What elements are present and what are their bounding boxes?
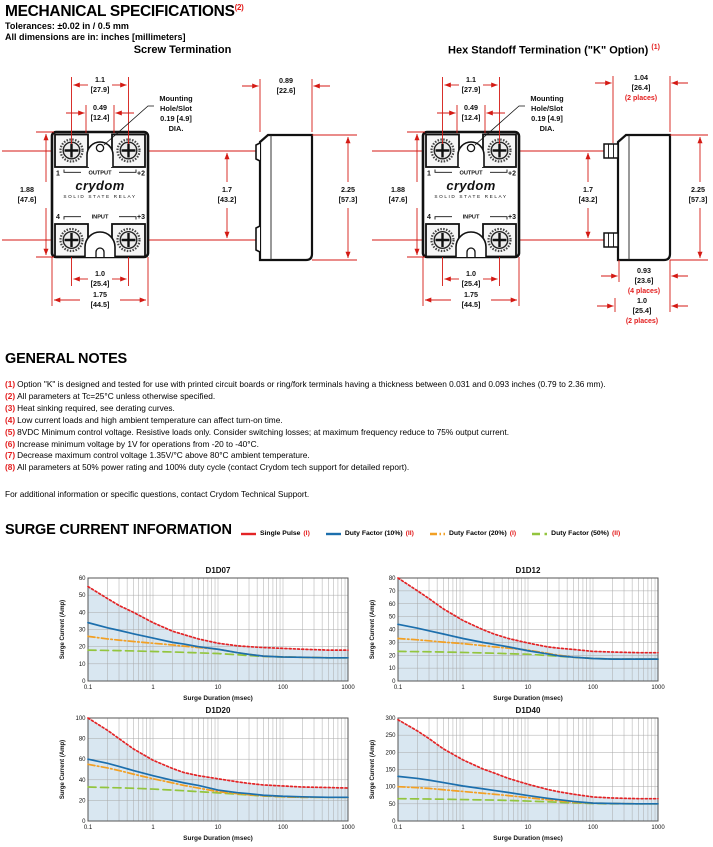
dim-mm-label: [25.4] — [91, 279, 110, 288]
svg-text:1000: 1000 — [651, 685, 665, 691]
svg-text:50: 50 — [389, 615, 396, 621]
mounting-note: 0.19 [4.9] — [160, 114, 192, 123]
svg-text:D1D40: D1D40 — [516, 706, 541, 715]
note-text: Decrease maximum control voltage 1.35V/°… — [17, 450, 310, 460]
dim-label: 1.1 — [95, 75, 105, 84]
svg-text:1000: 1000 — [341, 685, 355, 691]
relay-front-view — [423, 132, 519, 257]
legend-label: Duty Factor (50%) — [551, 530, 609, 537]
svg-text:60: 60 — [79, 576, 86, 582]
svg-text:10: 10 — [79, 662, 86, 668]
dim-mm-label: [47.6] — [389, 195, 408, 204]
note-item: (2)All parameters at Tc=25°C unless othe… — [5, 391, 606, 403]
svg-text:100: 100 — [278, 825, 289, 831]
dim-label: 2.25 — [691, 185, 705, 194]
note-number: (6) — [5, 439, 15, 449]
screw-side-view — [256, 135, 312, 260]
svg-text:0.1: 0.1 — [84, 685, 93, 691]
dim-label: 0.49 — [464, 103, 478, 112]
svg-text:0.1: 0.1 — [394, 825, 403, 831]
dim-mm-label: [44.5] — [91, 300, 110, 309]
surge-section-title: SURGE CURRENT INFORMATION — [5, 522, 232, 538]
svg-text:1: 1 — [151, 825, 155, 831]
svg-text:20: 20 — [389, 653, 396, 659]
note-number: (1) — [5, 379, 15, 389]
svg-text:80: 80 — [79, 737, 86, 743]
legend-line-swatch — [531, 531, 548, 537]
svg-text:1000: 1000 — [651, 825, 665, 831]
note-number: (5) — [5, 427, 15, 437]
svg-text:100: 100 — [75, 716, 86, 722]
dim-note-label: (4 places) — [628, 288, 660, 295]
svg-text:40: 40 — [389, 628, 396, 634]
dim-label: 1.0 — [95, 269, 105, 278]
svg-text:70: 70 — [389, 589, 396, 595]
svg-text:10: 10 — [215, 685, 222, 691]
dim-mm-label: [25.4] — [633, 306, 652, 315]
dim-note-label: (2 places) — [626, 318, 658, 325]
mounting-note: Mounting — [159, 94, 193, 103]
dim-mm-label: [27.9] — [91, 85, 110, 94]
svg-text:D1D12: D1D12 — [516, 566, 541, 575]
dim-label: 1.04 — [634, 73, 648, 82]
dim-mm-label: [27.9] — [462, 85, 481, 94]
surge-chart-d1d20: D1D20Surge Current (Amp)Surge Duration (… — [57, 703, 359, 847]
legend-label: Single Pulse — [260, 530, 300, 537]
note-text: All parameters at 50% power rating and 1… — [17, 462, 409, 472]
screw-termination-title: Screw Termination — [0, 44, 365, 56]
legend-item-duty-factor-50: Duty Factor (50%) (II) — [531, 530, 620, 537]
svg-text:20: 20 — [79, 645, 86, 651]
surge-chart-d1d12: D1D12Surge Current (Amp)Surge Duration (… — [367, 563, 669, 708]
dim-label: 1.0 — [637, 296, 647, 305]
dim-label: 1.1 — [466, 75, 476, 84]
svg-text:10: 10 — [389, 666, 396, 672]
dim-label: 0.89 — [279, 76, 293, 85]
hex-termination-drawing: 1.1 [27.9] 0.49 [12.4] Mounting Hole/Slo… — [370, 58, 713, 350]
note-number: (7) — [5, 450, 15, 460]
dim-mm-label: [26.4] — [632, 83, 651, 92]
svg-text:150: 150 — [385, 768, 396, 774]
legend-item-duty-factor-20: Duty Factor (20%) (I) — [429, 530, 516, 537]
svg-text:80: 80 — [389, 576, 396, 582]
dim-label: 2.25 — [341, 185, 355, 194]
svg-text:100: 100 — [588, 685, 599, 691]
mounting-note: DIA. — [540, 124, 555, 133]
svg-text:300: 300 — [385, 716, 396, 722]
mounting-note: 0.19 [4.9] — [531, 114, 563, 123]
dim-mm-label: [25.4] — [462, 279, 481, 288]
svg-text:Surge Current (Amp): Surge Current (Amp) — [370, 740, 376, 799]
dim-mm-label: [22.6] — [277, 86, 296, 95]
datasheet-page: MECHANICAL SPECIFICATIONS(2) Tolerances:… — [0, 0, 713, 847]
surge-legend: Single Pulse (I) Duty Factor (10%) (II) … — [240, 530, 620, 537]
svg-text:60: 60 — [389, 602, 396, 608]
dim-mm-label: [43.2] — [218, 195, 237, 204]
svg-text:Surge Duration (msec): Surge Duration (msec) — [183, 695, 253, 702]
dim-mm-label: [23.6] — [635, 276, 654, 285]
svg-text:20: 20 — [79, 798, 86, 804]
note-item: (6)Increase minimum voltage by 1V for op… — [5, 439, 606, 451]
mounting-note: Hole/Slot — [160, 104, 193, 113]
svg-text:40: 40 — [79, 778, 86, 784]
note-text: Increase minimum voltage by 1V for opera… — [17, 439, 259, 449]
svg-text:100: 100 — [278, 685, 289, 691]
note-item: (4)Low current loads and high ambient te… — [5, 415, 606, 427]
svg-text:Surge Duration (msec): Surge Duration (msec) — [493, 695, 563, 702]
dim-note-label: (2 places) — [625, 95, 657, 102]
legend-footnote-marker: (I) — [303, 530, 309, 537]
legend-footnote-marker: (II) — [406, 530, 414, 537]
svg-text:Surge Duration (msec): Surge Duration (msec) — [183, 835, 253, 842]
svg-text:50: 50 — [389, 802, 396, 808]
surge-chart-d1d07: D1D07Surge Current (Amp)Surge Duration (… — [57, 563, 359, 708]
svg-text:60: 60 — [79, 757, 86, 763]
legend-item-duty-factor-10: Duty Factor (10%) (II) — [325, 530, 414, 537]
svg-text:D1D20: D1D20 — [206, 706, 231, 715]
svg-text:250: 250 — [385, 733, 396, 739]
hex-side-view — [604, 135, 670, 260]
surge-chart-d1d40: D1D40Surge Current (Amp)Surge Duration (… — [367, 703, 669, 847]
legend-line-swatch — [325, 531, 342, 537]
dim-mm-label: [43.2] — [579, 195, 598, 204]
note-text: Heat sinking required, see derating curv… — [17, 403, 175, 413]
svg-text:1: 1 — [151, 685, 155, 691]
note-text: 8VDC Minimum control voltage. Resistive … — [17, 427, 509, 437]
dim-label: 1.88 — [20, 185, 34, 194]
dim-label: 1.0 — [466, 269, 476, 278]
dim-mm-label: [12.4] — [91, 113, 110, 122]
mounting-note: Hole/Slot — [531, 104, 564, 113]
hex-termination-title: Hex Standoff Termination ("K" Option) (1… — [395, 44, 713, 57]
svg-text:Surge Current (Amp): Surge Current (Amp) — [60, 740, 66, 799]
legend-footnote-marker: (II) — [612, 530, 620, 537]
svg-text:30: 30 — [79, 628, 86, 634]
legend-line-swatch — [429, 531, 446, 537]
svg-text:10: 10 — [525, 825, 532, 831]
tolerances-note: Tolerances: ±0.02 in / 0.5 mm — [5, 21, 129, 31]
svg-text:200: 200 — [385, 750, 396, 756]
hex-termination-title-text: Hex Standoff Termination ("K" Option) — [448, 45, 648, 57]
dim-label: 1.75 — [464, 290, 478, 299]
svg-text:1: 1 — [461, 825, 465, 831]
mounting-note: DIA. — [169, 124, 184, 133]
note-text: Option "K" is designed and tested for us… — [17, 379, 605, 389]
general-notes-list: (1)Option "K" is designed and tested for… — [5, 379, 606, 474]
note-item: (7)Decrease maximum control voltage 1.35… — [5, 450, 606, 462]
note-item: (8)All parameters at 50% power rating an… — [5, 462, 606, 474]
dim-label: 1.75 — [93, 290, 107, 299]
note-text: All parameters at Tc=25°C unless otherwi… — [17, 391, 215, 401]
relay-front-view — [52, 132, 148, 257]
page-title-footnote: (2) — [235, 3, 244, 12]
dim-mm-label: [44.5] — [462, 300, 481, 309]
legend-footnote-marker: (I) — [510, 530, 516, 537]
legend-label: Duty Factor (20%) — [449, 530, 507, 537]
svg-text:Surge Duration (msec): Surge Duration (msec) — [493, 835, 563, 842]
dimensions-note: All dimensions are in: inches [millimete… — [5, 32, 186, 42]
svg-text:100: 100 — [385, 785, 396, 791]
page-title: MECHANICAL SPECIFICATIONS(2) — [5, 3, 244, 21]
svg-text:40: 40 — [79, 610, 86, 616]
svg-text:10: 10 — [525, 685, 532, 691]
dim-label: 0.49 — [93, 103, 107, 112]
note-number: (3) — [5, 403, 15, 413]
contact-note: For additional information or specific q… — [5, 489, 309, 499]
svg-text:0.1: 0.1 — [394, 685, 403, 691]
svg-text:1000: 1000 — [341, 825, 355, 831]
svg-text:1: 1 — [461, 685, 465, 691]
note-item: (3)Heat sinking required, see derating c… — [5, 403, 606, 415]
dim-mm-label: [57.3] — [689, 195, 708, 204]
legend-line-swatch — [240, 531, 257, 537]
svg-text:10: 10 — [215, 825, 222, 831]
page-title-text: MECHANICAL SPECIFICATIONS — [5, 3, 235, 20]
dim-mm-label: [12.4] — [462, 113, 481, 122]
mounting-note: Mounting — [530, 94, 564, 103]
note-item: (5)8VDC Minimum control voltage. Resisti… — [5, 427, 606, 439]
legend-label: Duty Factor (10%) — [345, 530, 403, 537]
svg-text:0.1: 0.1 — [84, 825, 93, 831]
svg-text:50: 50 — [79, 593, 86, 599]
dim-label: 1.7 — [583, 185, 593, 194]
svg-text:Surge Current (Amp): Surge Current (Amp) — [60, 600, 66, 659]
svg-text:100: 100 — [588, 825, 599, 831]
note-text: Low current loads and high ambient tempe… — [17, 415, 283, 425]
note-number: (2) — [5, 391, 15, 401]
svg-text:30: 30 — [389, 640, 396, 646]
note-number: (8) — [5, 462, 15, 472]
note-item: (1)Option "K" is designed and tested for… — [5, 379, 606, 391]
general-notes-title: GENERAL NOTES — [5, 351, 127, 367]
dim-mm-label: [47.6] — [18, 195, 37, 204]
legend-item-single-pulse: Single Pulse (I) — [240, 530, 310, 537]
hex-termination-footnote: (1) — [651, 44, 660, 51]
screw-termination-drawing: 1 OUTPUT +2 crydom SOLID STATE RELAY 4 I… — [0, 58, 365, 350]
svg-text:D1D07: D1D07 — [206, 566, 231, 575]
hex-standoff — [604, 144, 618, 158]
note-number: (4) — [5, 415, 15, 425]
svg-text:Surge Current (Amp): Surge Current (Amp) — [370, 600, 376, 659]
dim-mm-label: [57.3] — [339, 195, 358, 204]
dim-label: 1.88 — [391, 185, 405, 194]
dim-label: 0.93 — [637, 266, 651, 275]
hex-standoff — [604, 233, 618, 247]
dim-label: 1.7 — [222, 185, 232, 194]
